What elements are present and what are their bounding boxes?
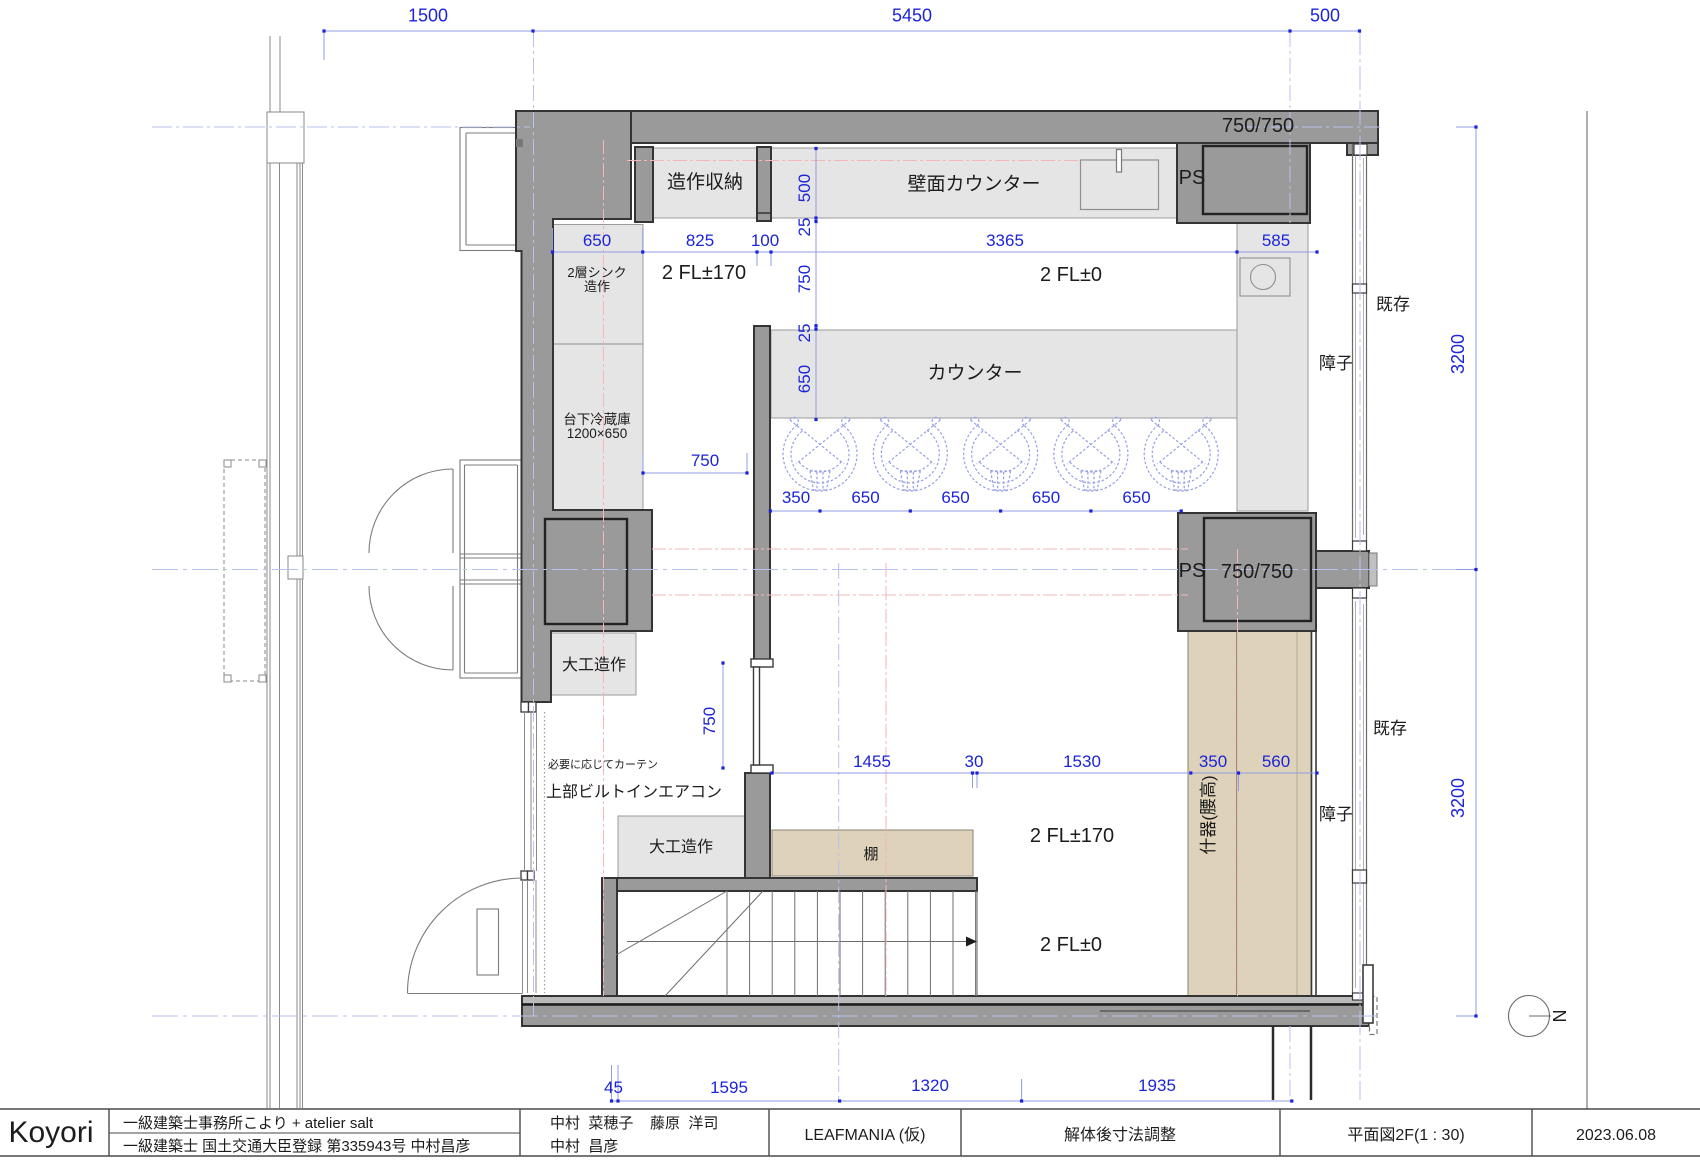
svg-text:2 FL±0: 2 FL±0 xyxy=(1040,264,1102,286)
svg-text:650: 650 xyxy=(851,488,879,507)
svg-text:3365: 3365 xyxy=(986,231,1024,250)
svg-text:造作収納: 造作収納 xyxy=(667,171,743,193)
svg-text:825: 825 xyxy=(686,231,714,250)
svg-text:大工造作: 大工造作 xyxy=(649,838,713,856)
svg-text:1595: 1595 xyxy=(710,1078,748,1097)
svg-text:1320: 1320 xyxy=(911,1076,949,1095)
svg-text:大工造作: 大工造作 xyxy=(562,656,626,674)
svg-text:中村 昌彦: 中村 昌彦 xyxy=(550,1138,618,1155)
svg-text:壁面カウンター: 壁面カウンター xyxy=(907,173,1040,195)
svg-text:750/750: 750/750 xyxy=(1221,561,1293,583)
svg-text:3200: 3200 xyxy=(1448,778,1468,818)
svg-text:Koyori: Koyori xyxy=(8,1116,93,1149)
svg-text:650: 650 xyxy=(795,365,814,393)
svg-text:上部ビルトインエアコン: 上部ビルトインエアコン xyxy=(546,783,722,801)
svg-text:什器(腰高): 什器(腰高) xyxy=(1199,775,1218,854)
svg-text:650: 650 xyxy=(1032,488,1060,507)
svg-text:750/750: 750/750 xyxy=(1222,115,1294,137)
svg-text:30: 30 xyxy=(965,752,984,771)
svg-text:100: 100 xyxy=(751,231,779,250)
svg-text:中村 菜穂子 藤原 洋司: 中村 菜穂子 藤原 洋司 xyxy=(550,1115,718,1132)
svg-text:既存: 既存 xyxy=(1373,719,1407,738)
svg-text:障子: 障子 xyxy=(1319,805,1353,824)
svg-text:750: 750 xyxy=(795,265,814,293)
svg-text:1455: 1455 xyxy=(853,752,891,771)
svg-text:1530: 1530 xyxy=(1063,752,1101,771)
svg-text:650: 650 xyxy=(583,231,611,250)
svg-text:25: 25 xyxy=(795,218,814,237)
svg-text:750: 750 xyxy=(691,451,719,470)
svg-text:3200: 3200 xyxy=(1448,334,1468,374)
svg-text:台下冷蔵庫: 台下冷蔵庫 xyxy=(563,412,631,427)
svg-text:650: 650 xyxy=(1122,488,1150,507)
svg-text:棚: 棚 xyxy=(863,846,878,863)
svg-text:PS: PS xyxy=(1179,560,1206,582)
svg-text:2023.06.08: 2023.06.08 xyxy=(1576,1127,1656,1144)
svg-text:500: 500 xyxy=(795,174,814,202)
svg-text:造作: 造作 xyxy=(584,279,610,294)
svg-text:5450: 5450 xyxy=(892,6,932,26)
svg-text:一級建築士事務所こより + atelier salt: 一級建築士事務所こより + atelier salt xyxy=(123,1114,374,1132)
svg-text:N: N xyxy=(1549,1010,1569,1023)
svg-text:必要に応じてカーテン: 必要に応じてカーテン xyxy=(548,757,658,771)
svg-text:LEAFMANIA (仮): LEAFMANIA (仮) xyxy=(805,1126,926,1144)
svg-text:カウンター: カウンター xyxy=(927,362,1022,384)
svg-text:1200×650: 1200×650 xyxy=(567,426,627,441)
svg-text:585: 585 xyxy=(1262,231,1290,250)
svg-text:2 FL±0: 2 FL±0 xyxy=(1040,934,1102,956)
svg-text:650: 650 xyxy=(941,488,969,507)
svg-text:2 FL±170: 2 FL±170 xyxy=(1030,825,1114,847)
svg-text:平面図2F(1 : 30): 平面図2F(1 : 30) xyxy=(1347,1127,1464,1144)
svg-text:障子: 障子 xyxy=(1319,354,1353,373)
svg-text:1500: 1500 xyxy=(408,6,448,26)
svg-text:560: 560 xyxy=(1262,752,1290,771)
svg-text:PS: PS xyxy=(1179,167,1206,189)
svg-text:25: 25 xyxy=(795,324,814,343)
svg-text:既存: 既存 xyxy=(1376,295,1410,314)
svg-text:45: 45 xyxy=(604,1078,623,1097)
svg-text:2 FL±170: 2 FL±170 xyxy=(662,262,746,284)
svg-text:2層シンク: 2層シンク xyxy=(567,265,626,280)
svg-text:350: 350 xyxy=(782,488,810,507)
svg-text:750: 750 xyxy=(700,707,719,735)
svg-text:1935: 1935 xyxy=(1138,1076,1176,1095)
svg-text:一級建築士 国土交通大臣登録 第335943号 中村昌彦: 一級建築士 国土交通大臣登録 第335943号 中村昌彦 xyxy=(123,1137,471,1155)
svg-text:解体後寸法調整: 解体後寸法調整 xyxy=(1064,1126,1176,1144)
svg-text:350: 350 xyxy=(1199,752,1227,771)
svg-text:500: 500 xyxy=(1310,6,1340,26)
